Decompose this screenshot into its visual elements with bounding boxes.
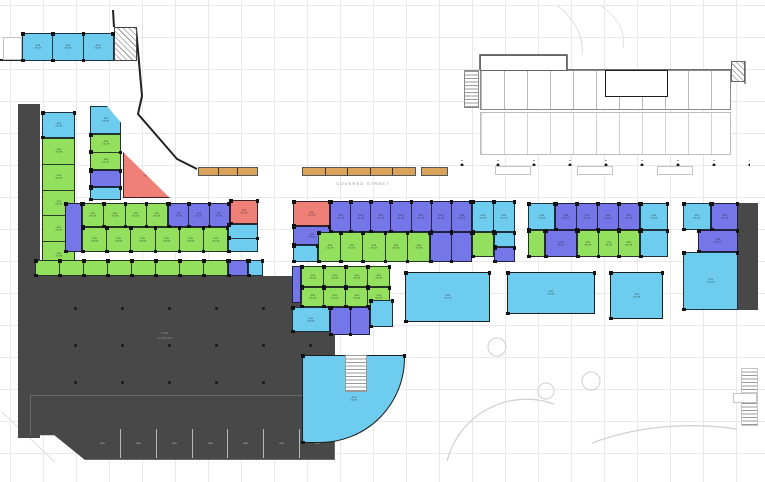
center-r1-cyan: xxxxx.xxxxxxx.xx [472, 201, 515, 232]
dblrow-r2-cyan [228, 224, 258, 252]
left-colB-cyan-bottom [90, 187, 121, 200]
arcade-strip-green-cell [156, 261, 180, 275]
column-marker [544, 255, 548, 259]
column-marker [410, 200, 414, 204]
dblrow-r1-green-cell: xxxxx.xx [104, 204, 125, 226]
column-marker [471, 255, 475, 259]
dblrow-r1-red-cell: xxxxx.xx [231, 201, 257, 223]
unit-label: xxxxx.xx [480, 214, 487, 219]
hall-west: xxxxx.xx [405, 272, 490, 322]
center-r2-green-cell: xxxxx.xx [319, 233, 341, 261]
column-marker [300, 305, 304, 309]
left-colB-green-cell: xxxxx.xx [91, 153, 120, 170]
column-marker [256, 199, 260, 203]
column-marker [73, 111, 77, 115]
awning-strip-1 [198, 167, 258, 176]
south-purple [330, 307, 370, 335]
unit-label: xxxxx.xx [143, 173, 150, 178]
center-cyan-small [293, 245, 318, 262]
unit-label: xxxxx.xx [91, 237, 98, 242]
center-cyan-small-cell [294, 246, 317, 261]
column-marker [41, 111, 45, 115]
unit-label: xxxxx.xx [353, 274, 360, 279]
site-boundary-top [113, 10, 114, 27]
unit-label: xxxxx.xx [458, 214, 465, 219]
column-marker [471, 231, 475, 235]
column-marker [639, 255, 643, 259]
column-marker [682, 308, 686, 312]
column-marker [322, 305, 326, 309]
column-marker [105, 250, 109, 254]
column-marker [666, 202, 670, 206]
red-triangle-unit-cell: xxxxx.xx [124, 153, 169, 197]
unit-label: xxxxx.xx [715, 239, 722, 244]
unit-label: xxx [511, 169, 516, 172]
column-marker [682, 251, 686, 255]
unit-label: xxxxx.xx [331, 295, 338, 300]
parking-label-line2: x,xxx xx [135, 336, 195, 340]
unit-label: xxxxx.xx [415, 245, 422, 250]
column-marker [429, 260, 433, 264]
column-marker [403, 354, 407, 358]
unit-label: xxxxx.xx [626, 241, 633, 246]
center-r1-purple: xxxxx.xxxxxxx.xxxxxxx.xxxxxxx.xxxxxxx.xx… [330, 201, 472, 232]
column-marker [124, 202, 128, 206]
left-colB-green-cell: xxxxx.xx [91, 135, 120, 153]
unit-label: xxxxx.xx [584, 214, 591, 219]
topleft-cyan-row-cell: xxxxx.xx [84, 34, 113, 60]
column-marker [291, 330, 295, 334]
curved-unit-stair-notch [345, 355, 367, 392]
column-marker [124, 225, 128, 229]
column-marker [119, 151, 123, 155]
right-r1-cyan: xxxxx.xx [528, 203, 555, 230]
arcade-strip-green-cell [36, 261, 60, 275]
column-marker [471, 200, 475, 204]
column-marker [513, 231, 517, 235]
unit-label: xxxxx.xx [371, 245, 378, 250]
left-colA-green-cell: xxxxx.xx [43, 139, 74, 165]
northeast-stair-cell [465, 71, 478, 107]
center-r1-cyan-cell: xxxxx.xx [473, 202, 494, 231]
column-marker [389, 230, 393, 234]
column-marker [119, 169, 123, 173]
storage-units-row-cell: xxx [264, 429, 300, 458]
hall-mid: xxxxx.xx [507, 272, 595, 314]
column-marker [609, 317, 613, 321]
column-marker [247, 274, 251, 278]
dblrow-r2-cyan-cell [229, 225, 257, 239]
unit-label: xxxxx.xx [375, 274, 382, 279]
column-marker [430, 200, 434, 204]
unit-label: xxxxx.xx [501, 214, 508, 219]
column-marker [369, 230, 373, 234]
column-marker [178, 274, 182, 278]
column-marker [58, 259, 62, 263]
column-marker [129, 226, 133, 230]
column-marker [130, 259, 134, 263]
column-marker [366, 265, 370, 269]
column-marker [384, 260, 388, 264]
unit-label: xxxxx.xx [694, 214, 701, 219]
unit-label: xxxxx.xx [398, 214, 405, 219]
column-marker [406, 260, 410, 264]
south-green-r2-cell: xxxxx.xx [324, 288, 346, 306]
farright-cyan-cell: xxxxx.xx [684, 204, 710, 229]
northeast-stair [464, 70, 479, 108]
column-marker [388, 265, 392, 269]
column-marker [506, 312, 510, 316]
column-marker [349, 200, 353, 204]
unit-label: xxxxx.xx [153, 213, 160, 218]
right-r2-green-cell [529, 231, 544, 256]
right-r2-cyan-cell [641, 231, 667, 256]
unit-label: xxxxx.xx [102, 158, 109, 163]
dblrow-r2-green-cell: xxxxx.xx [204, 228, 227, 251]
column-marker [513, 200, 517, 204]
column-marker [167, 225, 171, 229]
column-marker [102, 202, 106, 206]
unit-label: xxxxx.xx [548, 291, 555, 296]
column-marker [344, 305, 348, 309]
column-marker [404, 271, 408, 275]
left-colB-purple [90, 170, 121, 187]
column-marker [406, 231, 410, 235]
column-marker [349, 230, 353, 234]
unit-label: xxx [244, 442, 249, 445]
unit-label: xxxxx.xx [444, 295, 451, 300]
farright-purple2: xxxxx.xx [698, 230, 738, 252]
column-marker [597, 229, 601, 233]
column-marker [597, 255, 601, 259]
column-marker [369, 325, 373, 329]
column-marker [575, 202, 579, 206]
farright-dark-strip-cell [738, 203, 758, 310]
column-marker [736, 202, 740, 206]
column-marker [129, 250, 133, 254]
column-marker [82, 59, 86, 63]
column-marker [493, 260, 497, 264]
column-marker [89, 169, 93, 173]
south-purple-cell [351, 308, 370, 334]
northeast-sign3: xxx [657, 166, 693, 175]
column-marker [344, 286, 348, 290]
center-r1-purple-cell: xxxxx.xx [432, 202, 452, 231]
right-r2-green2: xxxxx.xxxxxxx.xxxxxxx.xx [577, 230, 640, 257]
column-marker [389, 200, 393, 204]
column-marker [493, 231, 497, 235]
south-green-r1-cell: xxxxx.xx [346, 267, 368, 286]
unit-label: xxxxx.xx [353, 295, 360, 300]
center-r2-purple-cell [452, 233, 472, 261]
left-colB-cyan-top-cell: xxxxx.xx [91, 107, 120, 133]
center-r2-green-end-cell [473, 233, 493, 256]
dblrow-r2-green: xxxxx.xxxxxxx.xxxxxxx.xxxxxxx.xxxxxxx.xx… [82, 227, 228, 252]
unit-label: xxxxx.xx [558, 241, 565, 246]
dblrow-r2-green-cell: xxxxx.xx [83, 228, 107, 251]
right-r1-cyan2-cell: xxxxx.xx [641, 204, 667, 229]
column-marker [21, 59, 25, 63]
column-marker [64, 202, 68, 206]
unit-label: xxxxx.xx [584, 241, 591, 246]
column-marker [89, 186, 93, 190]
center-r1-purple-cell: xxxxx.xx [452, 202, 471, 231]
column-marker [301, 354, 305, 358]
column-marker [301, 441, 305, 445]
column-marker [51, 32, 55, 36]
column-marker [154, 274, 158, 278]
northeast-rooms-band2 [480, 112, 731, 155]
left-colB-cyan-bottom-cell [91, 188, 120, 199]
unit-label: xxxxx.xx [309, 295, 316, 300]
unit-label: xxxxx.xx [34, 45, 41, 50]
column-marker [609, 271, 613, 275]
awning-strip-2-cell [371, 168, 394, 175]
unit-label: xxxxx.xx [309, 274, 316, 279]
topleft-cyan-row-cell: xxxxx.xx [53, 34, 83, 60]
right-r1-purple: xxxxx.xxxxxxx.xxxxxxx.xxxxxxx.xx [555, 203, 640, 230]
column-marker [227, 202, 231, 206]
column-marker [736, 251, 740, 255]
column-marker [368, 306, 372, 310]
south-green-r2-cell: xxxxx.xx [346, 288, 368, 306]
curved-unit-stair-notch-cell [346, 356, 366, 391]
column-marker [178, 259, 182, 263]
unit-label: xxxxx.xx [348, 245, 355, 250]
northeast-hatch-box-cell [732, 62, 744, 81]
unit-label: xxxxx.xx [375, 295, 382, 300]
column-marker [227, 274, 231, 278]
column-marker [329, 200, 333, 204]
column-marker [316, 244, 320, 248]
site-boundary-diagonal [136, 28, 197, 169]
unit-label: xxxxx.xx [55, 226, 62, 231]
center-r2-purple [430, 232, 472, 262]
northeast-sign3-cell: xxx [658, 167, 692, 174]
parking-label-line1: xxx [135, 330, 195, 335]
northeast-top-box-cell [481, 56, 566, 70]
south-cyan-cell: xxxxx.xx [293, 308, 329, 331]
unit-label: xxxxx.xx [55, 149, 62, 154]
unit-label: xxxxx.xx [55, 175, 62, 180]
road-curve-topright [557, 5, 582, 55]
topleft-small-room-cell [4, 38, 21, 59]
right-r2-green2-cell: xxxxx.xx [599, 231, 620, 256]
column-marker [404, 320, 408, 324]
unit-label: xxxxx.xx [350, 397, 357, 402]
center-r2-green-cell: xxxxx.xx [341, 233, 363, 261]
northeast-elevator-core-cell [606, 71, 667, 96]
column-marker [527, 229, 531, 233]
column-marker [21, 32, 25, 36]
column-marker [682, 202, 686, 206]
column-marker [300, 265, 304, 269]
unit-label: xxxxx.xx [563, 214, 570, 219]
column-marker [227, 250, 231, 254]
column-marker [291, 306, 295, 310]
red-triangle-unit: xxxxx.xx [123, 152, 170, 198]
left-colB-cyan-top: xxxxx.xx [90, 106, 121, 134]
farright-dark-strip [738, 203, 758, 310]
column-marker [292, 200, 296, 204]
column-marker [64, 250, 68, 254]
column-marker [202, 274, 206, 278]
column-marker [329, 333, 333, 337]
column-marker [369, 299, 373, 303]
column-marker [292, 244, 296, 248]
center-r1-cyan-cell: xxxxx.xx [494, 202, 514, 231]
column-marker [349, 333, 353, 337]
unit-label: xxx [593, 169, 598, 172]
column-marker [361, 231, 365, 235]
unit-label: xxxxx.xx [241, 210, 248, 215]
hall-west-cell: xxxxx.xx [406, 273, 489, 321]
column-marker [81, 250, 85, 254]
column-marker [226, 226, 230, 230]
hall-east-cell: xxxxx.xx [611, 273, 662, 318]
left-colB-purple-cell [91, 171, 120, 186]
column-marker [51, 59, 55, 63]
unit-label: xxxxx.xx [605, 214, 612, 219]
floor-plan-canvas: xxxxx.xxxxxxx.xxxxxxx.xxxxxxx.xxxxxxx.xx… [0, 0, 765, 482]
dblrow-r1-green-cell: xxxxx.xx [83, 204, 104, 226]
column-marker [554, 202, 558, 206]
column-marker [366, 286, 370, 290]
column-marker [492, 200, 496, 204]
arcade-strip-purple-cell [229, 261, 247, 275]
right-r1-purple-cell: xxxxx.xx [577, 204, 598, 229]
left-colB-green: xxxxx.xxxxxxx.xx [90, 134, 121, 170]
column-marker [247, 259, 251, 263]
column-marker [322, 265, 326, 269]
center-r2-purple-end-cell [495, 248, 514, 261]
center-r2-green-cell: xxxxx.xx [408, 233, 429, 261]
tree-circle-1 [488, 338, 506, 356]
column-marker [710, 228, 714, 232]
arcade-strip-green [35, 260, 228, 276]
column-marker [344, 265, 348, 269]
column-marker [82, 259, 86, 263]
column-marker [34, 274, 38, 278]
dblrow-r1-purple-cell: xxxxx.xx [169, 204, 189, 226]
topleft-cyan-row-cell: xxxxx.xx [23, 34, 53, 60]
unit-label: xxxxx.xx [55, 252, 62, 257]
unit-label: xxxxx.xx [651, 214, 658, 219]
column-marker [450, 260, 454, 264]
northeast-elevator-core [605, 70, 668, 97]
unit-label: xxxxx.xx [175, 213, 182, 218]
awning-strip-2 [302, 167, 416, 176]
northeast-sign2: xxx [577, 166, 613, 175]
column-marker [292, 225, 296, 229]
unit-label: xxxxx.xx [55, 200, 62, 205]
landscape-arc-big [447, 399, 554, 461]
topleft-cyan-row: xxxxx.xxxxxxx.xxxxxxx.xx [22, 33, 114, 61]
unit-label: xxxxx.xx [438, 214, 445, 219]
column-marker [450, 200, 454, 204]
unit-label: xxxxx.xx [357, 214, 364, 219]
column-marker [106, 259, 110, 263]
unit-label: xxxxx.xx [216, 213, 223, 218]
unit-label: xxxxx.xx [111, 213, 118, 218]
northeast-sign2-cell: xxx [578, 167, 612, 174]
column-marker [666, 229, 670, 233]
column-marker [300, 286, 304, 290]
column-marker [58, 274, 62, 278]
awning-strip-2-cell [348, 168, 371, 175]
column-marker [167, 202, 171, 206]
unit-label: xxxxx.xx [164, 237, 171, 242]
column-marker [361, 260, 365, 264]
column-marker [391, 299, 395, 303]
column-marker [145, 202, 149, 206]
unit-label: xxxxx.xx [626, 214, 633, 219]
covered-street-label: COVERED STREET [308, 181, 418, 186]
column-marker [339, 260, 343, 264]
right-r1-cyan2: xxxxx.xx [640, 203, 668, 230]
column-marker [34, 259, 38, 263]
right-r1-purple-cell: xxxxx.xx [619, 204, 639, 229]
arcade-strip-green-cell [132, 261, 156, 275]
unit-label: xxx [136, 442, 141, 445]
column-marker [349, 306, 353, 310]
column-marker [261, 259, 265, 263]
south-green-r1-cell: xxxxx.xx [324, 267, 346, 286]
unit-label: xxxxx.xx [393, 245, 400, 250]
column-marker [111, 32, 115, 36]
column-marker [154, 250, 158, 254]
column-marker [576, 229, 580, 233]
dblrow-r1-green: xxxxx.xxxxxxx.xxxxxxx.xxxxxxx.xx [82, 203, 168, 227]
south-purple-cell [331, 308, 351, 334]
center-r2-cyan-end-cell [495, 233, 514, 246]
column-marker [697, 250, 701, 254]
dblrow-r1-purple-cell: xxxxx.xx [189, 204, 209, 226]
dblrow-purple-end-cell [66, 204, 81, 251]
northeast-sign1: xxx [495, 166, 531, 175]
dblrow-r2-green-cell: xxxxx.xx [156, 228, 180, 251]
ramp-box: xxx [733, 393, 757, 403]
column-marker [89, 133, 93, 137]
unit-label: xxxxx.xx [633, 293, 640, 298]
right-r1-purple-cell: xxxxx.xx [598, 204, 619, 229]
column-marker [130, 274, 134, 278]
center-r2-green-cell: xxxxx.xx [363, 233, 385, 261]
center-r2-cyan-end [494, 232, 515, 247]
column-marker [410, 230, 414, 234]
unit-label: xxxxx.xx [115, 237, 122, 242]
center-r2-green-end [472, 232, 494, 257]
unit-label: xxxxx.xx [707, 279, 714, 284]
arcade-strip-green-cell [60, 261, 84, 275]
column-marker [317, 231, 321, 235]
dblrow-r2-green-cell: xxxxx.xx [107, 228, 131, 251]
south-cyan2 [370, 300, 393, 327]
column-marker [178, 226, 182, 230]
column-marker [488, 271, 492, 275]
topleft-small-room [3, 37, 22, 60]
arcade-strip-purple [228, 260, 248, 276]
column-marker [697, 229, 701, 233]
left-colA-cyan: xxxxx.xx [42, 112, 75, 138]
unit-label: xxx [743, 397, 748, 400]
column-marker [506, 271, 510, 275]
storage-units-row-cell: xxx [85, 429, 121, 458]
column-marker [89, 198, 93, 202]
tree-circle-2 [538, 383, 554, 399]
center-r2-purple-cell [431, 233, 452, 261]
unit-label: xxxxx.xx [95, 45, 102, 50]
